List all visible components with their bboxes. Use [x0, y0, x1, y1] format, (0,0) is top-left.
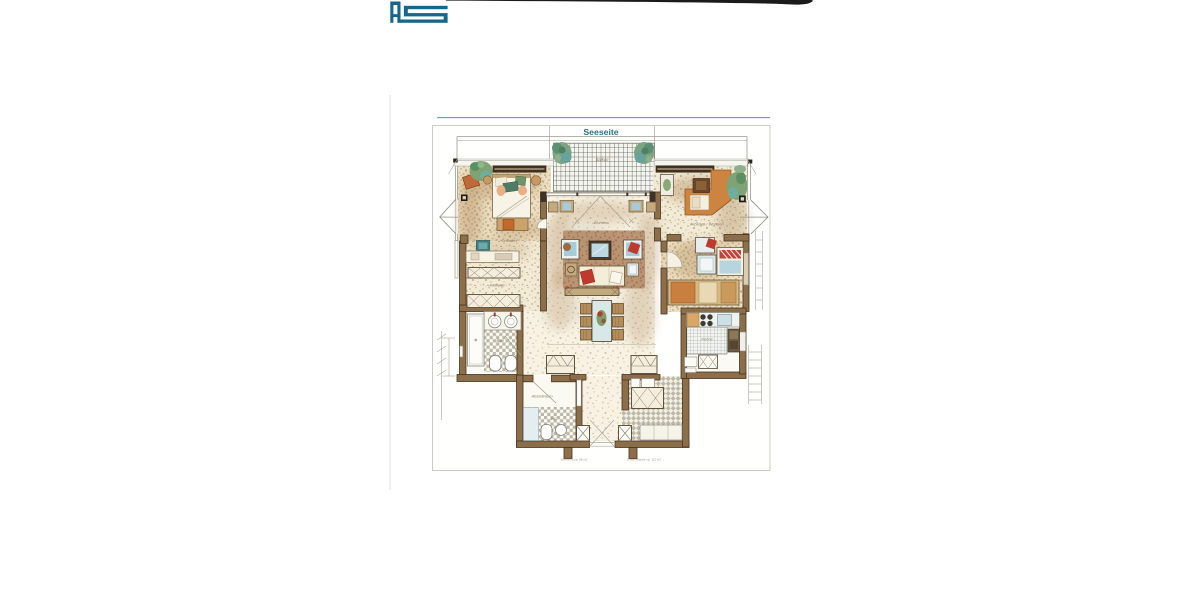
svg-text:WC: WC	[551, 416, 558, 421]
svg-text:Seeseite: Seeseite	[583, 127, 618, 137]
svg-text:Küche: Küche	[701, 337, 713, 342]
svg-text:Balkon: Balkon	[596, 157, 609, 162]
svg-text:Wohnung ca. 98 m2: Wohnung ca. 98 m2	[561, 458, 588, 462]
svg-text:Abstellraum: Abstellraum	[530, 394, 553, 399]
svg-text:Ankleide: Ankleide	[488, 283, 505, 288]
svg-text:Arbeiten / Wohnen: Arbeiten / Wohnen	[689, 222, 724, 227]
svg-text:Schlafen: Schlafen	[501, 238, 517, 243]
svg-text:Bad: Bad	[496, 338, 504, 343]
svg-text:Wohnen: Wohnen	[594, 220, 610, 225]
svg-text:Gesamtflache ca. 112 m2: Gesamtflache ca. 112 m2	[627, 458, 661, 462]
